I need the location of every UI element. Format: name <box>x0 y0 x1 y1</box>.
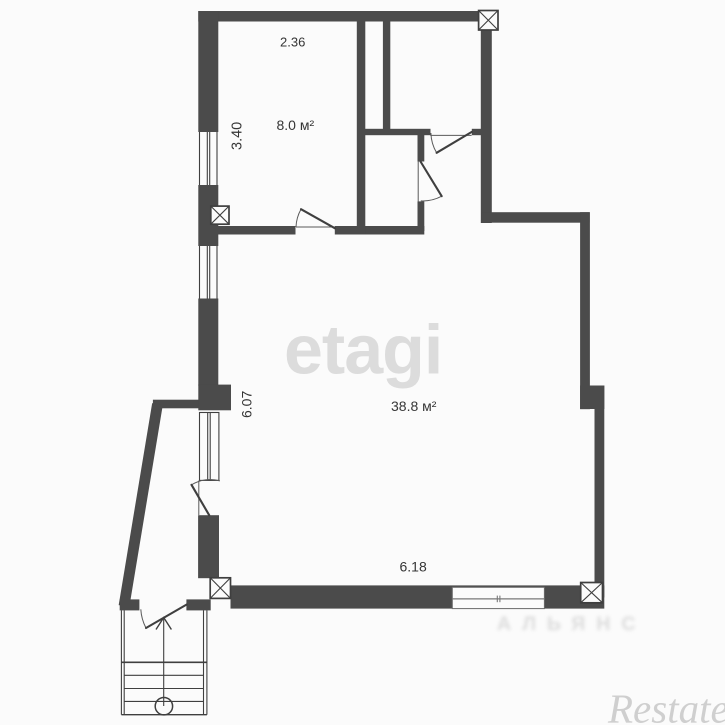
svg-text:8.0 м²: 8.0 м² <box>277 117 315 133</box>
svg-text:6.07: 6.07 <box>239 391 255 418</box>
svg-text:АЛЬЯНС: АЛЬЯНС <box>497 613 646 635</box>
svg-text:38.8 м²: 38.8 м² <box>391 398 437 414</box>
svg-text:2.36: 2.36 <box>280 35 305 50</box>
svg-text:6.18: 6.18 <box>400 559 427 575</box>
svg-text:Restate: Restate <box>607 686 725 725</box>
svg-text:3.40: 3.40 <box>230 122 246 150</box>
svg-text:etagi: etagi <box>284 311 442 389</box>
